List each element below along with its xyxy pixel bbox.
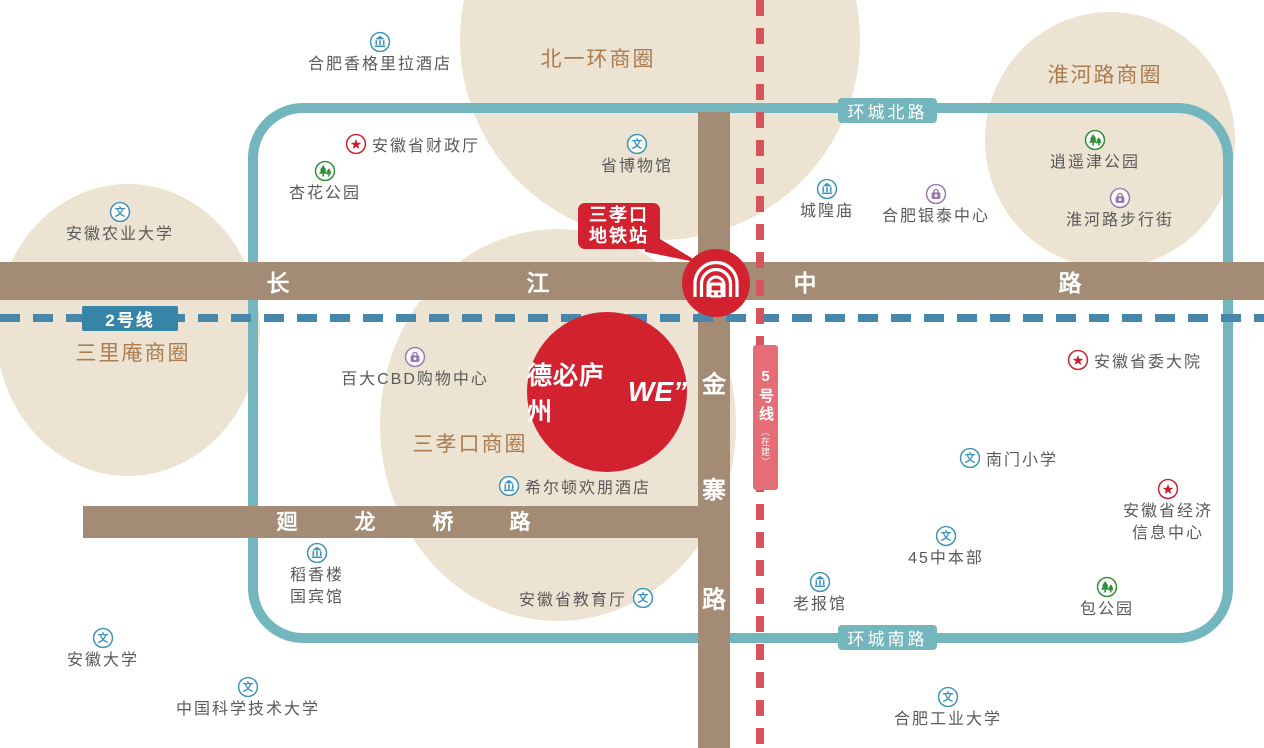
poi-label-line1: 安徽省经济 — [1123, 501, 1213, 523]
bank-icon — [306, 542, 328, 564]
poi-label: 安徽省经济信息中心 — [1123, 501, 1213, 545]
road-name-char: 路 — [702, 580, 726, 615]
svg-text:文: 文 — [940, 530, 952, 543]
bag-icon — [1109, 187, 1131, 209]
road-huilongqiao — [83, 506, 700, 538]
metro-line5-label: 5号线 — [755, 368, 776, 424]
metro-line2-label: 2号线 — [105, 306, 154, 331]
road-name-char: 廻 — [277, 506, 298, 536]
svg-text:文: 文 — [964, 452, 976, 465]
svg-text:文: 文 — [242, 681, 254, 694]
bank-icon — [498, 475, 520, 497]
poi-label: 淮河路步行街 — [1066, 210, 1174, 232]
bank-icon — [816, 178, 838, 200]
metro-line2-badge: 2号线 — [82, 306, 178, 331]
poi-label-line2: 信息中心 — [1123, 523, 1213, 545]
poi-label-line1: 稻香楼 — [290, 565, 344, 587]
station-bubble: 三孝口 地铁站 — [578, 203, 660, 249]
bag-icon — [404, 346, 426, 368]
map-canvas: 北一环商圈淮河路商圈三里庵商圈三孝口商圈 长江中路金寨路廻龙桥路 环城北路 环城… — [0, 0, 1264, 748]
culture-icon: 文 — [632, 587, 654, 609]
road-name-char: 中 — [794, 264, 817, 298]
road-name-char: 路 — [510, 506, 531, 536]
road-name-char: 路 — [1059, 264, 1082, 298]
poi-label: 稻香楼国宾馆 — [290, 565, 344, 609]
tree-icon — [314, 160, 336, 182]
poi-label: 45中本部 — [908, 548, 984, 570]
culture-icon: 文 — [959, 447, 981, 469]
culture-icon: 文 — [92, 627, 114, 649]
svg-text:文: 文 — [97, 632, 109, 645]
ring-road-north-label: 环城北路 — [848, 98, 928, 123]
poi-label: 安徽省委大院 — [1094, 348, 1202, 372]
poi-label: 省博物馆 — [601, 156, 673, 178]
poi-label: 希尔顿欢朋酒店 — [525, 474, 651, 498]
road-name-char: 龙 — [355, 506, 376, 536]
poi-label: 包公园 — [1080, 599, 1134, 621]
svg-text:文: 文 — [631, 138, 643, 151]
ring-road-south-label: 环城南路 — [848, 625, 928, 650]
culture-icon: 文 — [626, 133, 648, 155]
svg-text:文: 文 — [637, 592, 649, 605]
tree-icon — [1096, 576, 1118, 598]
bank-icon — [369, 31, 391, 53]
poi-label: 百大CBD购物中心 — [341, 369, 489, 391]
landmark-name-cn: 德必庐州 — [527, 356, 625, 428]
poi-label: 城隍庙 — [800, 201, 854, 223]
poi-label: 安徽大学 — [67, 650, 139, 672]
poi-label-line2: 国宾馆 — [290, 587, 344, 609]
culture-icon: 文 — [937, 686, 959, 708]
station-bubble-line2: 地铁站 — [589, 226, 649, 247]
road-jinzhai — [698, 112, 730, 748]
poi-label: 南门小学 — [986, 446, 1058, 470]
poi-label: 安徽省教育厅 — [519, 586, 627, 610]
business-circle-label: 三里庵商圈 — [76, 337, 191, 367]
metro-line5-badge: 5号线 （在建） — [753, 345, 778, 490]
star-icon — [1067, 349, 1089, 371]
bag-icon — [925, 183, 947, 205]
poi-label: 杏花公园 — [289, 183, 361, 205]
road-name-char: 寨 — [702, 471, 726, 506]
poi-label: 安徽省财政厅 — [372, 132, 480, 156]
metro-station-icon — [682, 249, 750, 317]
business-circle-label: 北一环商圈 — [541, 43, 656, 73]
poi-label: 逍遥津公园 — [1050, 152, 1140, 174]
culture-icon: 文 — [237, 676, 259, 698]
poi-label: 老报馆 — [793, 594, 847, 616]
subway-train-tunnel-glyph — [682, 249, 750, 317]
poi-label: 合肥工业大学 — [894, 709, 1002, 731]
poi-label: 中国科学技术大学 — [176, 699, 320, 721]
landmark-name-en: WE” — [628, 376, 687, 408]
metro-line5-sub-label: （在建） — [759, 427, 772, 467]
tree-icon — [1084, 129, 1106, 151]
road-name-char: 金 — [702, 365, 726, 400]
svg-text:文: 文 — [942, 691, 954, 704]
ring-road-north-badge: 环城北路 — [838, 98, 937, 123]
culture-icon: 文 — [935, 525, 957, 547]
culture-icon: 文 — [109, 201, 131, 223]
svg-text:文: 文 — [114, 206, 126, 219]
bank-icon — [809, 571, 831, 593]
landmark-circle: 德必庐州 WE” — [527, 312, 687, 472]
business-circle-label: 淮河路商圈 — [1048, 59, 1163, 89]
road-name-char: 江 — [527, 264, 550, 298]
poi-label: 安徽农业大学 — [66, 224, 174, 246]
ring-road-south-badge: 环城南路 — [838, 625, 937, 650]
poi-label: 合肥香格里拉酒店 — [308, 54, 452, 76]
road-name-char: 长 — [267, 264, 290, 298]
business-circle-label: 三孝口商圈 — [413, 428, 528, 458]
star-icon — [1157, 478, 1179, 500]
station-bubble-line1: 三孝口 — [589, 205, 649, 226]
star-icon — [345, 133, 367, 155]
road-name-char: 桥 — [433, 506, 454, 536]
poi-label: 合肥银泰中心 — [882, 206, 990, 228]
